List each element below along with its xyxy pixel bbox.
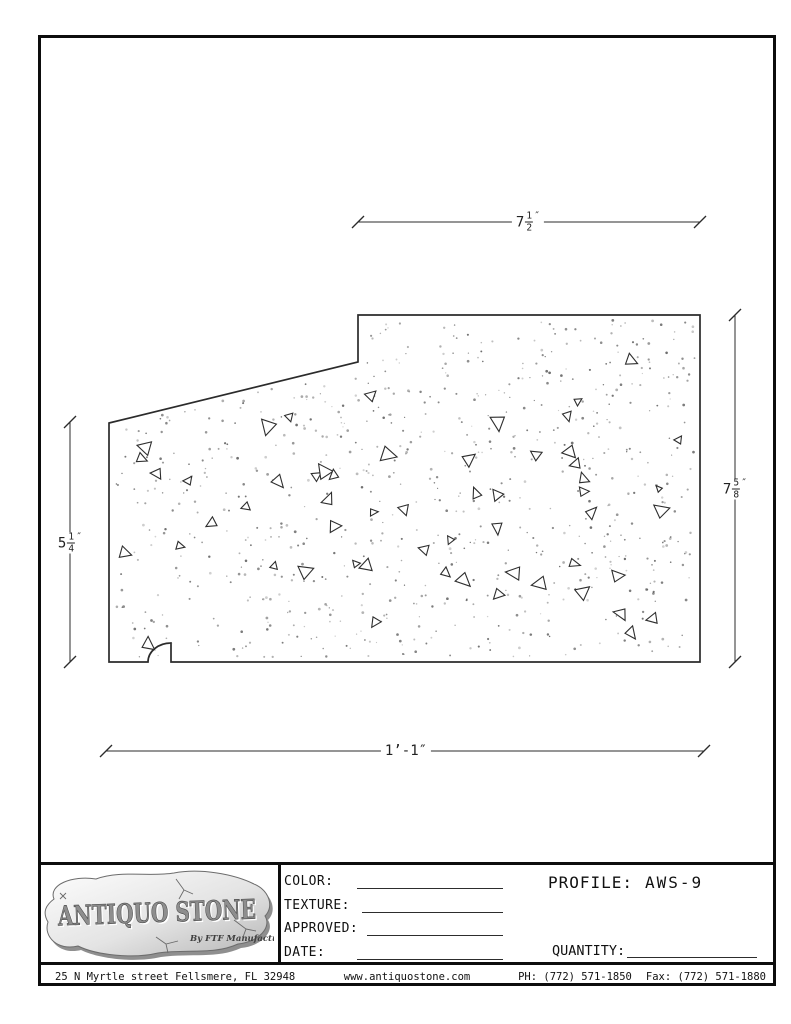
color-input-line[interactable]: [357, 888, 503, 889]
dimension-left-label: 514″: [54, 533, 86, 554]
profile-label: PROFILE:: [548, 873, 633, 892]
field-texture-label: TEXTURE:: [284, 898, 350, 913]
texture-input-line[interactable]: [362, 912, 503, 913]
dim-right-fraction: 58: [732, 479, 740, 500]
profile-value: AWS-9: [645, 873, 703, 892]
footer-phone: PH: (772) 571-1850: [518, 971, 632, 983]
profile-shape-outline: [109, 315, 700, 662]
dimension-top-label: 712″: [512, 212, 544, 233]
logo-cell: ANTIQUO STONE ANTIQUO STONE By FTF Manuf…: [38, 865, 281, 962]
field-approved-label: APPROVED:: [284, 921, 358, 936]
approved-input-line[interactable]: [367, 935, 503, 936]
footer-fax: Fax: (772) 571-1880: [646, 971, 766, 983]
dim-left-whole: 5: [58, 536, 66, 550]
footer-website[interactable]: www.antiquostone.com: [344, 971, 470, 983]
field-color-label: COLOR:: [284, 874, 333, 889]
quantity-label: QUANTITY:: [552, 943, 625, 959]
field-date-label: DATE:: [284, 945, 325, 960]
logo-subtitle-text: By FTF Manufacturing: [189, 934, 274, 944]
dim-left-fraction: 14: [67, 533, 75, 554]
dim-top-whole: 7: [516, 215, 524, 229]
footer-bar: 25 N Myrtle street Fellsmere, FL 32948 w…: [38, 962, 776, 989]
title-block: ANTIQUO STONE ANTIQUO STONE By FTF Manuf…: [38, 862, 776, 986]
date-input-line[interactable]: [357, 959, 503, 960]
dimension-right-label: 758″: [719, 479, 751, 500]
spec-sheet-page: 712″ 758″ 514″ 1’-1″: [0, 0, 791, 1024]
antiquo-stone-logo-icon: ANTIQUO STONE ANTIQUO STONE By FTF Manuf…: [38, 865, 274, 960]
dim-right-whole: 7: [723, 482, 731, 496]
dimension-bottom-label: 1’-1″: [381, 744, 431, 758]
dim-bottom-text: 1’-1″: [385, 744, 427, 758]
footer-address: 25 N Myrtle street Fellsmere, FL 32948: [55, 971, 295, 983]
dim-top-fraction: 12: [525, 212, 533, 233]
footer-phone-fax: PH: (772) 571-1850Fax: (772) 571-1880: [504, 971, 766, 983]
quantity-input-line[interactable]: [627, 957, 757, 958]
